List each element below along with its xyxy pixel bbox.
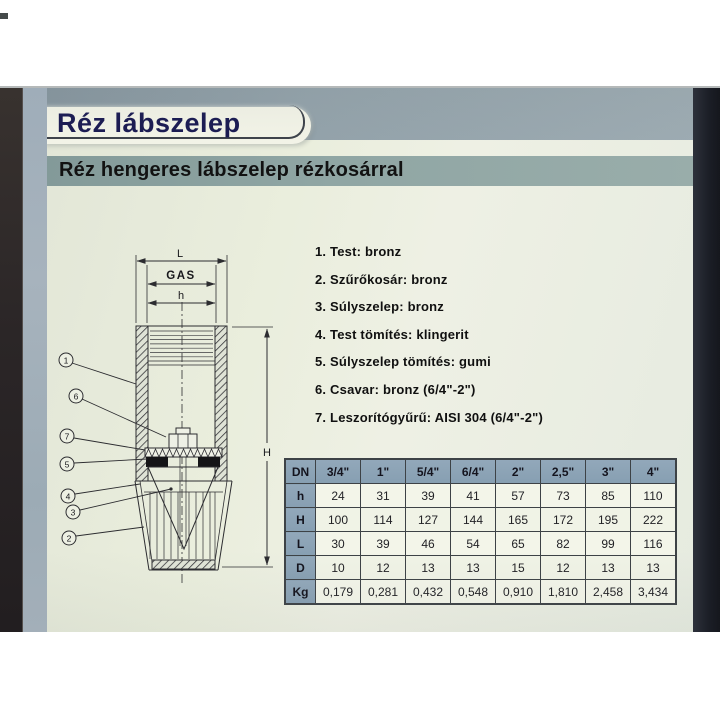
spec-value: 13 (586, 556, 631, 580)
spec-value: 54 (451, 532, 496, 556)
col-header-dn: DN (285, 459, 316, 484)
spec-value: 2,458 (586, 580, 631, 605)
spec-value: 73 (541, 484, 586, 508)
spec-value: 116 (631, 532, 677, 556)
row-label: L (285, 532, 316, 556)
callout-6-number: 6 (74, 392, 79, 402)
page-title: Réz lábszelep (57, 108, 241, 139)
spec-value: 165 (496, 508, 541, 532)
row-label: D (285, 556, 316, 580)
callout-4-number: 4 (66, 492, 71, 502)
spec-value: 13 (406, 556, 451, 580)
spec-value: 13 (451, 556, 496, 580)
spec-value: 41 (451, 484, 496, 508)
seal-blocks (146, 457, 220, 467)
spec-value: 24 (316, 484, 361, 508)
catalogue-page: Réz lábszelep Réz hengeres lábszelep réz… (47, 88, 693, 632)
spec-value: 57 (496, 484, 541, 508)
spec-value: 13 (631, 556, 677, 580)
part-item: 2. Szűrőkosár: bronz (315, 272, 655, 287)
callout-2-number: 2 (67, 534, 72, 544)
parts-list: 1. Test: bronz2. Szűrőkosár: bronz3. Súl… (315, 244, 655, 437)
spec-value: 100 (316, 508, 361, 532)
col-header-size: 3/4" (316, 459, 361, 484)
spec-value: 222 (631, 508, 677, 532)
dim-label-GAS: GAS (166, 270, 195, 282)
col-header-size: 6/4" (451, 459, 496, 484)
spec-value: 85 (586, 484, 631, 508)
col-header-size: 5/4" (406, 459, 451, 484)
spec-table: DN3/4"1"5/4"6/4"2"2,5"3"4"h2431394157738… (284, 458, 677, 605)
callout-1-number: 1 (64, 356, 69, 366)
spec-value: 0,548 (451, 580, 496, 605)
spec-value: 3,434 (631, 580, 677, 605)
dim-label-L: L (177, 248, 183, 260)
spec-value: 110 (631, 484, 677, 508)
spec-value: 82 (541, 532, 586, 556)
col-header-size: 4" (631, 459, 677, 484)
spec-value: 144 (451, 508, 496, 532)
spec-value: 12 (541, 556, 586, 580)
spec-value: 172 (541, 508, 586, 532)
callout-7-number: 7 (65, 432, 70, 442)
title-tab: Réz lábszelep (47, 107, 311, 144)
spec-value: 99 (586, 532, 631, 556)
spec-value: 15 (496, 556, 541, 580)
subtitle-band: Réz hengeres lábszelep rézkosárral (47, 156, 693, 186)
spec-value: 0,281 (361, 580, 406, 605)
spec-value: 30 (316, 532, 361, 556)
row-label: H (285, 508, 316, 532)
photo-edge-mark (0, 13, 8, 19)
photo-area: Réz lábszelep Réz hengeres lábszelep réz… (0, 88, 720, 632)
spec-table-wrapper: DN3/4"1"5/4"6/4"2"2,5"3"4"h2431394157738… (284, 458, 677, 605)
part-item: 5. Súlyszelep tömítés: gumi (315, 354, 655, 369)
dim-label-h: h (178, 290, 184, 302)
spec-value: 127 (406, 508, 451, 532)
part-item: 7. Leszorítógyűrű: AISI 304 (6/4"-2") (315, 410, 655, 425)
spec-value: 0,432 (406, 580, 451, 605)
header-band: Réz lábszelep (47, 88, 693, 140)
spec-value: 114 (361, 508, 406, 532)
dim-label-H: H (263, 447, 271, 459)
clamp-ring (145, 448, 222, 457)
spec-value: 65 (496, 532, 541, 556)
callout-5-number: 5 (65, 460, 70, 470)
spec-value: 12 (361, 556, 406, 580)
part-item: 3. Súlyszelep: bronz (315, 299, 655, 314)
part-item: 4. Test tömítés: klingerit (315, 327, 655, 342)
page-edge-strip (22, 88, 48, 632)
spec-value: 0,910 (496, 580, 541, 605)
col-header-size: 2" (496, 459, 541, 484)
callout-3-number: 3 (71, 508, 76, 518)
spec-value: 39 (361, 532, 406, 556)
part-item: 6. Csavar: bronz (6/4"-2") (315, 382, 655, 397)
spec-value: 0,179 (316, 580, 361, 605)
col-header-size: 1" (361, 459, 406, 484)
page-subtitle: Réz hengeres lábszelep rézkosárral (59, 159, 404, 182)
col-header-size: 2,5" (541, 459, 586, 484)
row-label: h (285, 484, 316, 508)
valve-technical-drawing: L GAS h H 1 6 7 5 4 3 2 (47, 245, 285, 590)
row-label: Kg (285, 580, 316, 605)
spec-value: 39 (406, 484, 451, 508)
part-item: 1. Test: bronz (315, 244, 655, 259)
spec-value: 1,810 (541, 580, 586, 605)
dark-frame-left (0, 88, 22, 632)
weight-cone (148, 467, 218, 549)
spec-value: 10 (316, 556, 361, 580)
spec-value: 31 (361, 484, 406, 508)
photographed-datasheet: Réz lábszelep Réz hengeres lábszelep réz… (0, 0, 720, 720)
dark-frame-right (693, 88, 720, 632)
spec-value: 195 (586, 508, 631, 532)
col-header-size: 3" (586, 459, 631, 484)
spec-value: 46 (406, 532, 451, 556)
dimension-outer-width (136, 255, 227, 323)
